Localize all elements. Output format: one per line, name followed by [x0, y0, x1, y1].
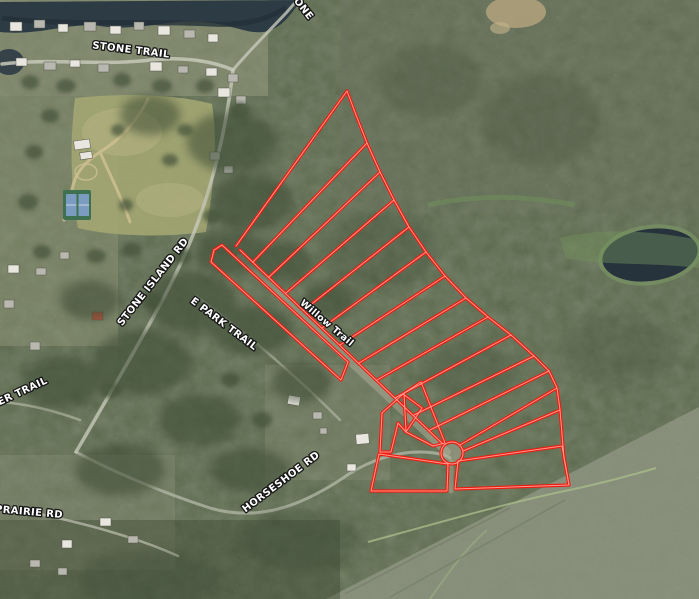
tennis-courts	[63, 190, 91, 220]
map-canvas: STONE TRAIL STONE STONE ISLAND RD E PARK…	[0, 0, 699, 599]
culdesac-pavement	[443, 444, 461, 462]
dirt-patch-small	[490, 22, 510, 34]
satellite-map[interactable]: STONE TRAIL STONE STONE ISLAND RD E PARK…	[0, 0, 699, 599]
